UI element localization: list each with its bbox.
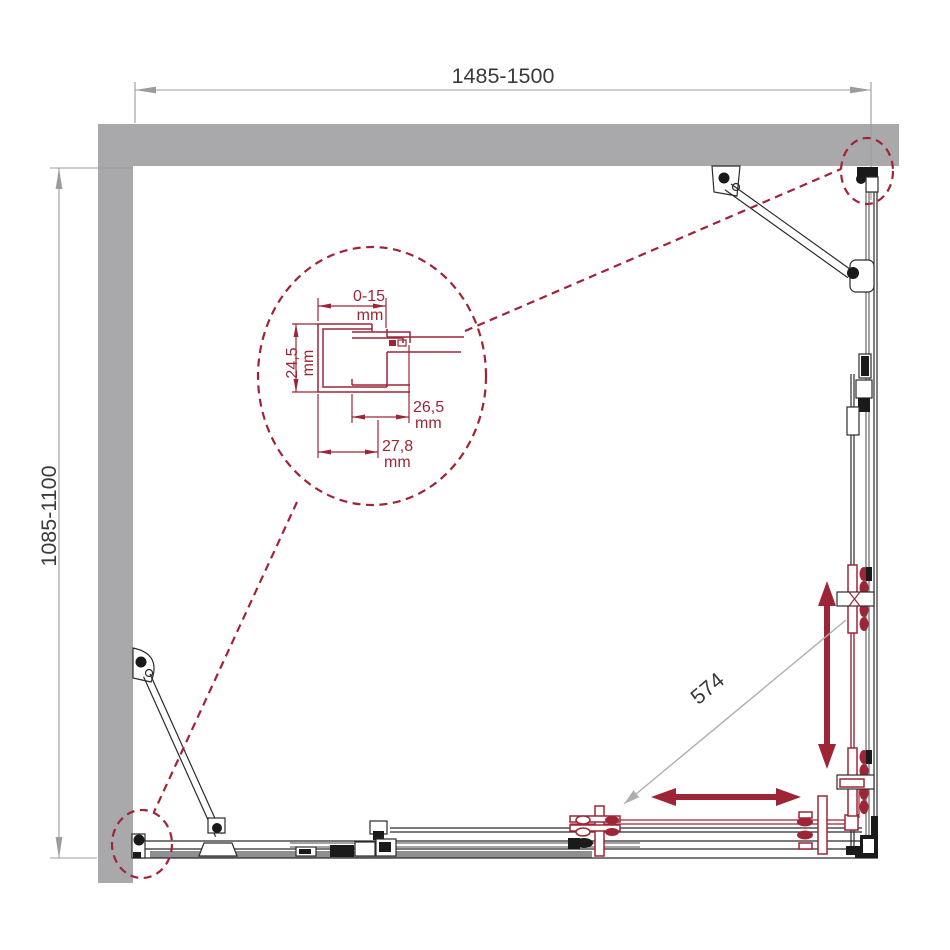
door-roller-black — [330, 845, 354, 857]
detail-callouts — [112, 138, 893, 878]
depth-value: 24,5 — [284, 347, 301, 378]
wall-top — [98, 124, 899, 166]
outer-unit: mm — [384, 454, 411, 471]
support-bar-top-right — [712, 166, 874, 292]
bolt — [719, 173, 730, 184]
outer-value: 27,8 — [382, 438, 413, 455]
bottom-fixed-panel — [133, 841, 878, 858]
inner-unit: mm — [415, 415, 442, 432]
arrowhead — [624, 790, 639, 804]
roller — [605, 816, 619, 824]
roller-profile — [818, 796, 827, 854]
door-opening-label: 574 — [686, 668, 729, 709]
arrowhead-top — [56, 168, 63, 189]
leader-line-bottom — [154, 502, 297, 812]
bolt — [212, 823, 222, 833]
leader-line-top — [465, 169, 841, 331]
roller — [605, 828, 619, 836]
arrowhead-right — [850, 87, 871, 94]
gap-unit: mm — [357, 307, 384, 324]
detail-dim-inner: 26,5 mm — [352, 345, 444, 432]
wall-left — [98, 124, 133, 883]
dimension-line — [624, 620, 846, 804]
rail-end-bracket — [845, 815, 858, 830]
bolt — [856, 174, 866, 184]
roller — [860, 617, 869, 631]
shower-enclosure-diagram: 1485-1500 1085-1100 — [0, 0, 950, 950]
roller — [797, 831, 813, 840]
roller — [576, 816, 590, 824]
detail-dim-depth: 24,5 mm — [284, 324, 318, 392]
detail-dim-gap: 0-15 mm — [318, 288, 386, 328]
bolt — [847, 267, 859, 279]
gap-value: 0-15 — [353, 288, 385, 305]
roller — [576, 828, 590, 836]
slide-arrow-vertical — [818, 581, 836, 769]
detail-dim-outer: 27,8 mm — [318, 394, 413, 471]
wall-bracket-bottom-left — [132, 834, 145, 858]
arrowhead-left — [135, 87, 156, 94]
roller-cluster-right-lower — [837, 748, 874, 816]
roller — [860, 800, 869, 814]
bracket-bar — [837, 592, 874, 606]
overall-depth-label: 1085-1100 — [37, 465, 61, 566]
bolt — [134, 835, 145, 846]
red-door-rail — [570, 633, 859, 830]
support-bar-bottom-left — [133, 648, 237, 856]
roller — [797, 818, 813, 827]
slide-arrow-horizontal — [651, 788, 801, 806]
foot-plate — [199, 843, 237, 856]
inner-value: 26,5 — [413, 399, 444, 416]
roller-cluster-bottom-right — [797, 796, 827, 854]
arrowhead-bottom — [56, 837, 63, 858]
guide-roller-black — [575, 838, 593, 848]
overall-width-label: 1485-1500 — [452, 64, 555, 88]
wall-bracket-top-right — [856, 167, 878, 192]
technical-drawing-canvas: 1485-1500 1085-1100 — [0, 0, 950, 950]
depth-unit: mm — [300, 350, 317, 377]
door-handle — [847, 407, 859, 435]
dimension-door-opening: 574 — [624, 620, 846, 804]
bolt — [136, 657, 147, 668]
profile-cross-section — [318, 324, 464, 392]
walls — [98, 124, 899, 883]
